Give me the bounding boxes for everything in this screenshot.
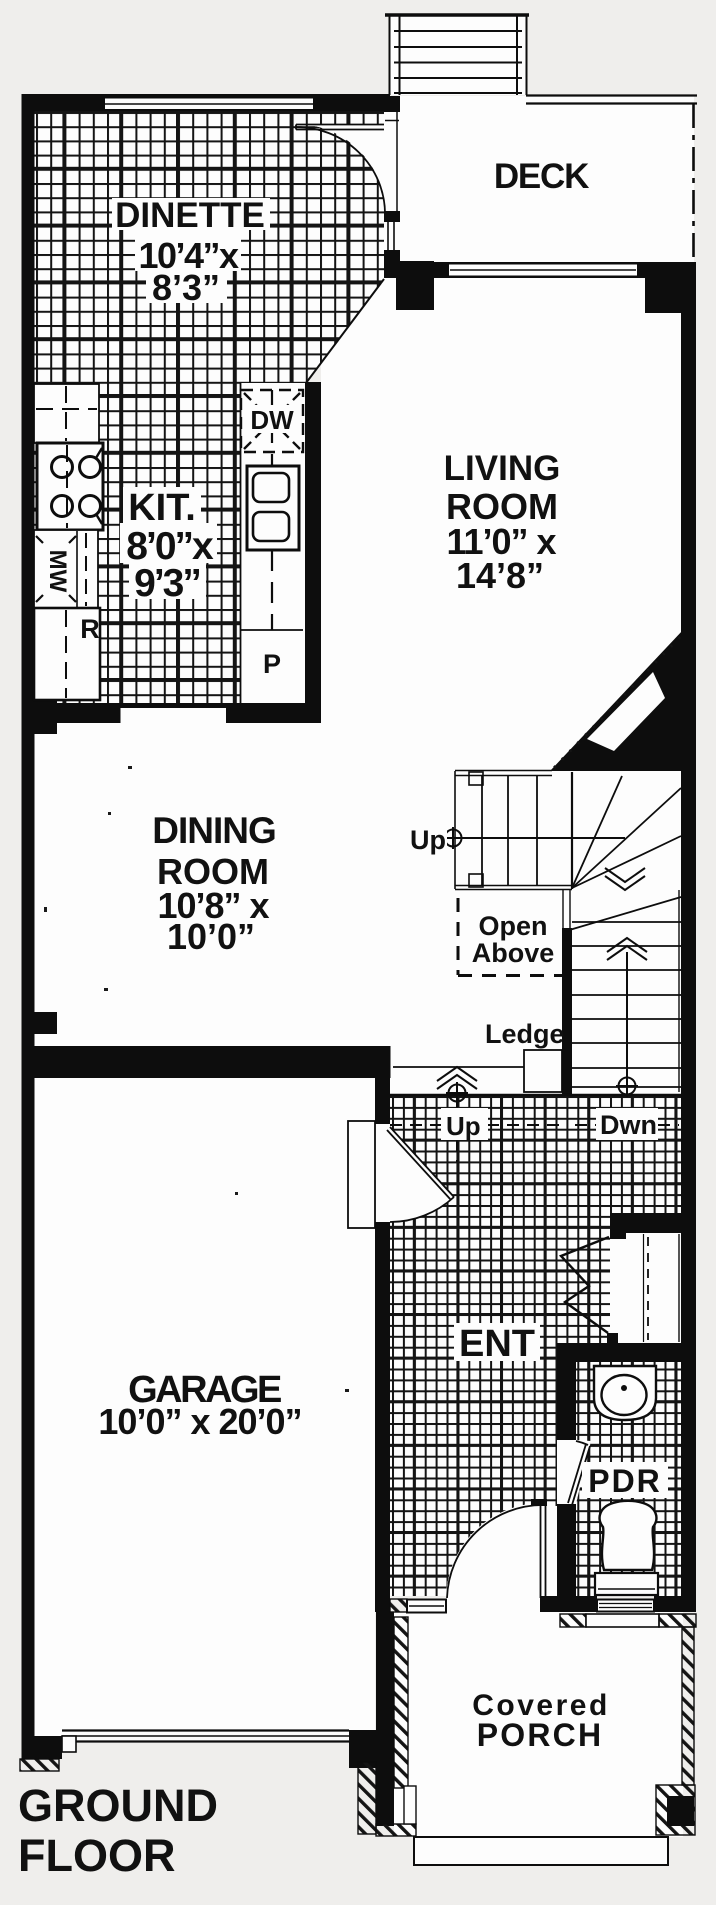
svg-text:10’0” x 20’0”: 10’0” x 20’0” bbox=[98, 1401, 301, 1442]
svg-text:DINING: DINING bbox=[152, 810, 276, 851]
svg-text:P: P bbox=[263, 649, 281, 679]
svg-text:Open: Open bbox=[478, 911, 547, 941]
svg-text:Up: Up bbox=[446, 1111, 481, 1141]
svg-text:10’0”: 10’0” bbox=[167, 916, 255, 957]
svg-text:14’8”: 14’8” bbox=[456, 555, 544, 596]
svg-text:DINETTE: DINETTE bbox=[115, 196, 265, 235]
svg-text:FLOOR: FLOOR bbox=[18, 1830, 175, 1881]
svg-text:KIT.: KIT. bbox=[128, 487, 196, 529]
svg-text:PORCH: PORCH bbox=[477, 1717, 604, 1753]
svg-text:DECK: DECK bbox=[494, 157, 589, 196]
svg-text:GROUND: GROUND bbox=[18, 1780, 218, 1831]
svg-text:Ledge: Ledge bbox=[485, 1019, 565, 1049]
svg-text:Above: Above bbox=[472, 938, 555, 968]
svg-text:DW: DW bbox=[250, 405, 294, 435]
svg-text:PDR: PDR bbox=[588, 1463, 662, 1499]
svg-text:8’3”: 8’3” bbox=[152, 267, 220, 308]
svg-text:MW: MW bbox=[44, 550, 71, 593]
svg-text:LIVING: LIVING bbox=[444, 449, 561, 488]
svg-text:Dwn: Dwn bbox=[600, 1110, 657, 1140]
svg-text:Up: Up bbox=[410, 825, 446, 855]
svg-text:9’3”: 9’3” bbox=[134, 562, 200, 605]
svg-text:R: R bbox=[80, 614, 100, 644]
svg-text:ENT: ENT bbox=[459, 1323, 535, 1365]
